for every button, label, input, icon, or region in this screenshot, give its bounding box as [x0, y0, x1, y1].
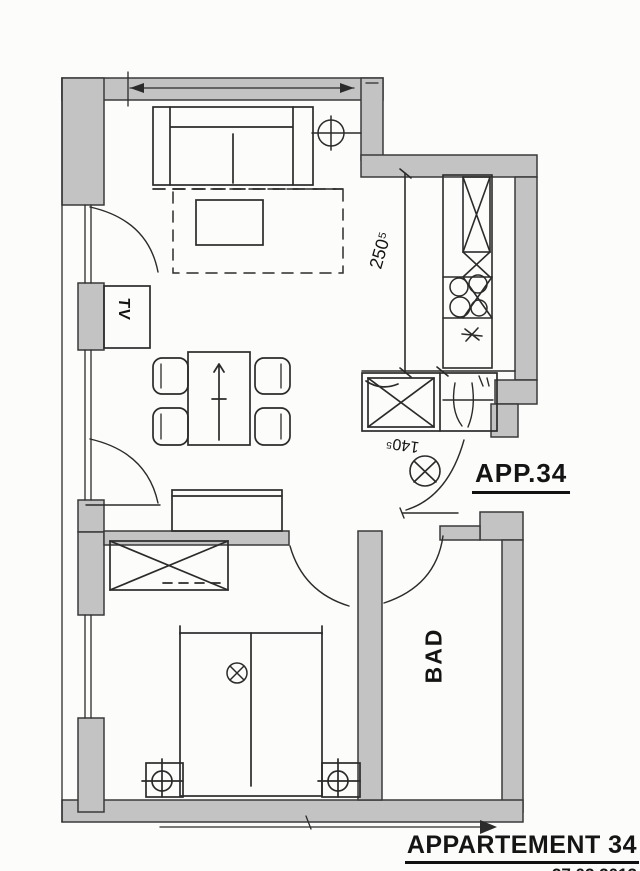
apartment-number-label: APP.34	[472, 458, 570, 494]
wall-bottom	[62, 800, 523, 822]
bed-lamp-icon	[227, 663, 247, 683]
wall-left-lower	[78, 718, 104, 812]
dining-table-leaf-line	[212, 364, 226, 440]
wall-bed-bath-divider	[358, 531, 382, 800]
burner	[450, 297, 470, 317]
burner	[450, 278, 468, 296]
utility-niche	[362, 373, 497, 431]
wall-pier-tv	[78, 283, 104, 350]
nightstand	[142, 759, 183, 797]
sideboard	[172, 490, 282, 531]
plan-date: 27.02.2013	[405, 865, 639, 871]
hall-lamp-icon	[410, 456, 440, 486]
tv-label: TV	[114, 297, 132, 321]
ceiling-lamp-icon	[312, 116, 361, 150]
hall	[410, 456, 440, 486]
dining-set	[153, 352, 290, 445]
chair	[255, 358, 290, 394]
window-glass-3	[85, 615, 91, 718]
kitchen-tall-cabinet-x	[463, 177, 490, 252]
door-arc-bedroom	[290, 546, 349, 606]
dimension-marks	[128, 72, 497, 834]
wall-step-1	[495, 380, 537, 404]
wall-left-corner	[62, 78, 104, 205]
bed	[180, 626, 322, 796]
wall-kitchen-right	[515, 177, 537, 380]
chair	[255, 408, 290, 445]
washbasin-tap	[479, 376, 489, 386]
wall-top	[62, 78, 383, 100]
wall-step-2	[491, 404, 518, 437]
washbasin	[443, 376, 493, 427]
door-arc-balcony	[90, 439, 158, 503]
chair-lines	[161, 364, 281, 439]
niche-swing-line	[366, 381, 398, 387]
floor-plan-drawing	[0, 0, 640, 871]
bedroom	[110, 541, 360, 797]
nightstand	[318, 759, 360, 797]
wall-pier-bedroom	[78, 532, 104, 615]
wall-entry-block	[480, 512, 523, 540]
bathroom-label: BAD	[421, 620, 448, 692]
chair	[153, 358, 188, 394]
washbasin-bowl	[454, 383, 474, 427]
wall-entry-ledge	[440, 526, 480, 540]
rug	[173, 189, 343, 273]
kitchen-sink-mark	[462, 328, 482, 341]
stove	[450, 275, 487, 317]
wall-bath-right	[502, 540, 523, 812]
door-arc-bathroom	[384, 536, 443, 603]
wardrobe	[110, 541, 228, 590]
floor-plan-scan: TV 250⁵ 140⁵ APP.34 BAD APPARTEMENT 34 2…	[0, 0, 640, 871]
sofa-inner	[170, 107, 293, 185]
kitchen	[362, 169, 515, 377]
door-arc-living-top	[90, 207, 158, 272]
wall-bedroom-top	[104, 531, 289, 545]
plan-title: APPARTEMENT 34	[405, 831, 639, 864]
wall-step-column	[361, 78, 383, 160]
window-glass-2	[85, 350, 91, 500]
living-room	[104, 107, 361, 531]
sofa	[153, 107, 343, 189]
title-block: APPARTEMENT 34 27.02.2013	[405, 831, 639, 871]
window-glass-1	[85, 205, 91, 283]
chair	[153, 408, 188, 445]
coffee-table	[196, 200, 263, 245]
wall-kitchen-top	[361, 155, 537, 177]
